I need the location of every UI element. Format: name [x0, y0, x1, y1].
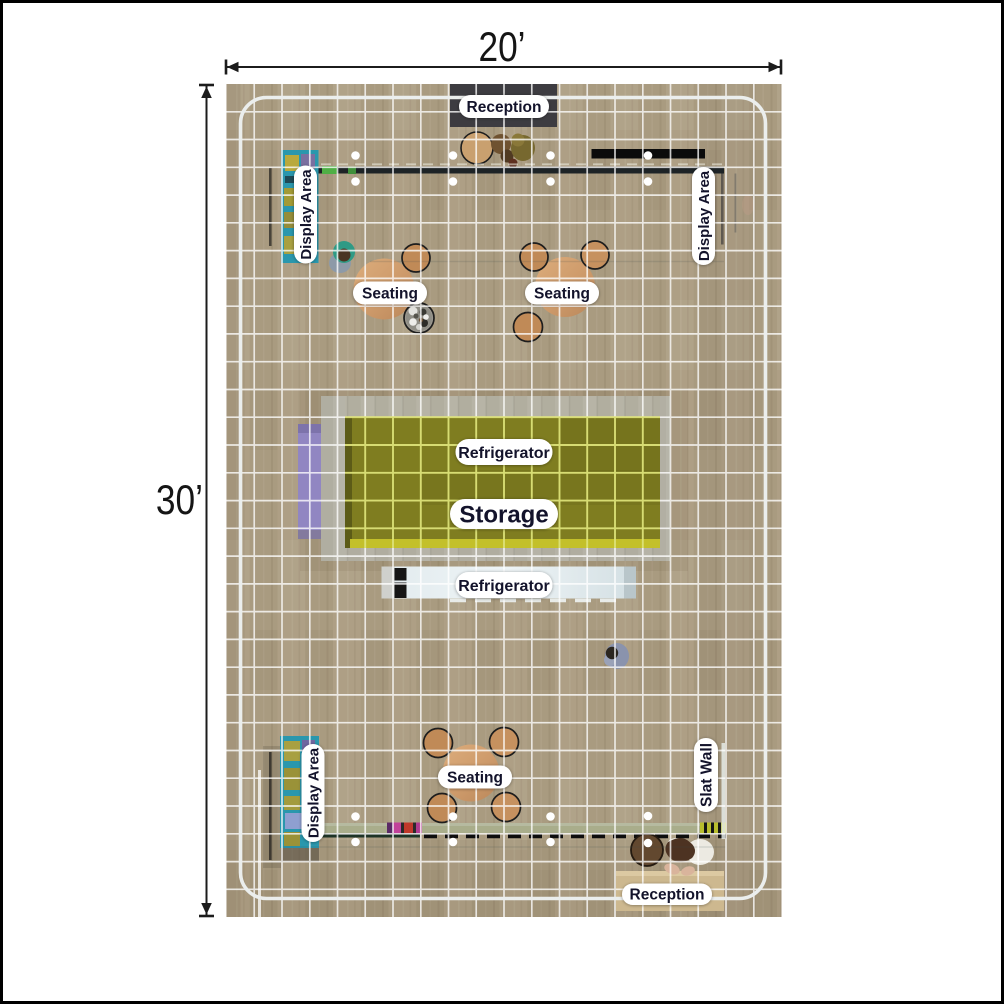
- svg-text:20’: 20’: [478, 24, 525, 71]
- svg-text:Seating: Seating: [362, 286, 418, 303]
- svg-text:Refrigerator: Refrigerator: [458, 445, 550, 462]
- svg-text:Refrigerator: Refrigerator: [458, 578, 550, 595]
- svg-text:30’: 30’: [156, 477, 203, 524]
- svg-text:Seating: Seating: [447, 770, 503, 787]
- svg-text:Seating: Seating: [534, 286, 590, 303]
- svg-text:Storage: Storage: [459, 502, 548, 529]
- svg-text:Reception: Reception: [630, 887, 705, 904]
- svg-text:Display Area: Display Area: [298, 169, 315, 260]
- svg-text:Reception: Reception: [467, 99, 542, 116]
- svg-text:Slat Wall: Slat Wall: [699, 743, 716, 807]
- svg-text:Display Area: Display Area: [306, 747, 323, 838]
- svg-text:Display Area: Display Area: [696, 170, 713, 261]
